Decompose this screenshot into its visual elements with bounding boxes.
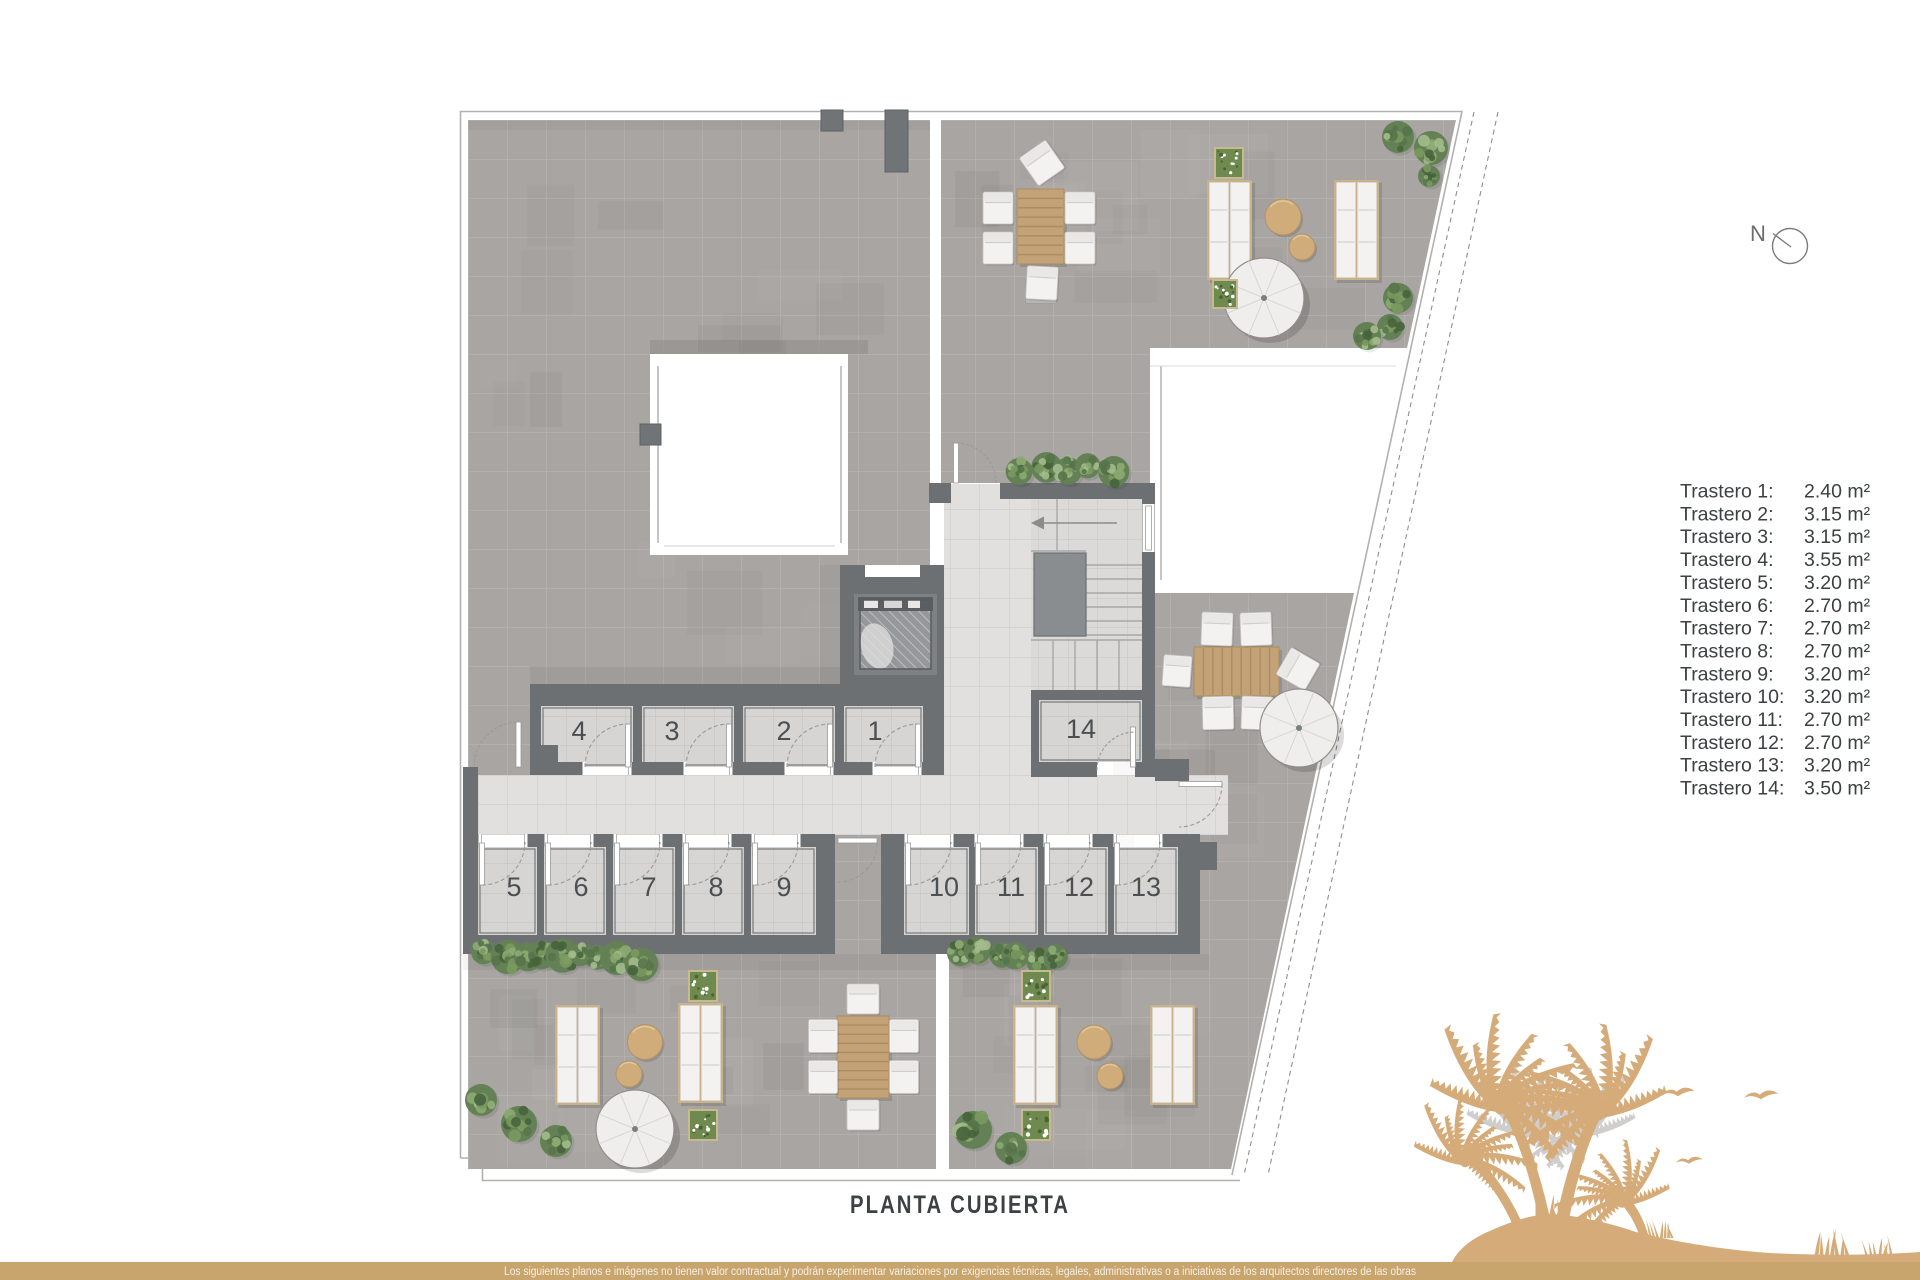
svg-text:Trastero 11:: Trastero 11: — [1680, 709, 1783, 731]
svg-text:13: 13 — [1131, 872, 1161, 902]
svg-text:Trastero 14:: Trastero 14: — [1680, 778, 1784, 800]
svg-text:Trastero 7:: Trastero 7: — [1680, 618, 1774, 640]
svg-text:10: 10 — [929, 872, 959, 902]
svg-text:3.20 m²: 3.20 m² — [1804, 663, 1871, 685]
svg-text:4: 4 — [571, 716, 586, 746]
svg-text:Trastero 5:: Trastero 5: — [1680, 572, 1774, 594]
svg-text:Trastero 6:: Trastero 6: — [1680, 595, 1774, 617]
svg-text:2.70 m²: 2.70 m² — [1804, 618, 1871, 640]
svg-text:2.70 m²: 2.70 m² — [1804, 732, 1871, 754]
svg-text:Trastero 1:: Trastero 1: — [1680, 481, 1774, 503]
svg-text:12: 12 — [1064, 872, 1094, 902]
svg-text:2.40 m²: 2.40 m² — [1804, 481, 1871, 503]
svg-text:14: 14 — [1066, 714, 1096, 744]
svg-text:3.20 m²: 3.20 m² — [1804, 686, 1871, 708]
svg-text:3.20 m²: 3.20 m² — [1804, 572, 1871, 594]
svg-text:PLANTA CUBIERTA: PLANTA CUBIERTA — [850, 1191, 1070, 1219]
svg-text:Trastero 2:: Trastero 2: — [1680, 503, 1774, 525]
svg-text:3.50 m²: 3.50 m² — [1804, 778, 1871, 800]
svg-text:3: 3 — [664, 716, 679, 746]
svg-text:Trastero 12:: Trastero 12: — [1680, 732, 1784, 754]
svg-text:2: 2 — [776, 716, 791, 746]
svg-text:Trastero 8:: Trastero 8: — [1680, 641, 1774, 663]
svg-text:3.15 m²: 3.15 m² — [1804, 526, 1871, 548]
svg-text:N: N — [1750, 221, 1766, 246]
svg-text:9: 9 — [776, 872, 791, 902]
svg-text:2.70 m²: 2.70 m² — [1804, 595, 1871, 617]
svg-text:5: 5 — [506, 872, 521, 902]
svg-text:2.70 m²: 2.70 m² — [1804, 641, 1871, 663]
svg-text:Trastero 13:: Trastero 13: — [1680, 755, 1784, 777]
svg-text:Los siguientes planos e imágen: Los siguientes planos e imágenes no tien… — [504, 1266, 1416, 1278]
svg-text:Trastero 3:: Trastero 3: — [1680, 526, 1774, 548]
svg-text:Trastero 10:: Trastero 10: — [1680, 686, 1784, 708]
svg-text:Trastero 4:: Trastero 4: — [1680, 549, 1774, 571]
svg-text:Trastero 9:: Trastero 9: — [1680, 663, 1774, 685]
svg-text:3.15 m²: 3.15 m² — [1804, 503, 1871, 525]
svg-text:11: 11 — [997, 872, 1025, 902]
svg-text:3.20 m²: 3.20 m² — [1804, 755, 1871, 777]
svg-text:8: 8 — [708, 872, 723, 902]
svg-text:3.55 m²: 3.55 m² — [1804, 549, 1871, 571]
svg-text:2.70 m²: 2.70 m² — [1804, 709, 1871, 731]
svg-text:1: 1 — [867, 716, 882, 746]
svg-text:7: 7 — [641, 872, 656, 902]
svg-text:6: 6 — [573, 872, 588, 902]
